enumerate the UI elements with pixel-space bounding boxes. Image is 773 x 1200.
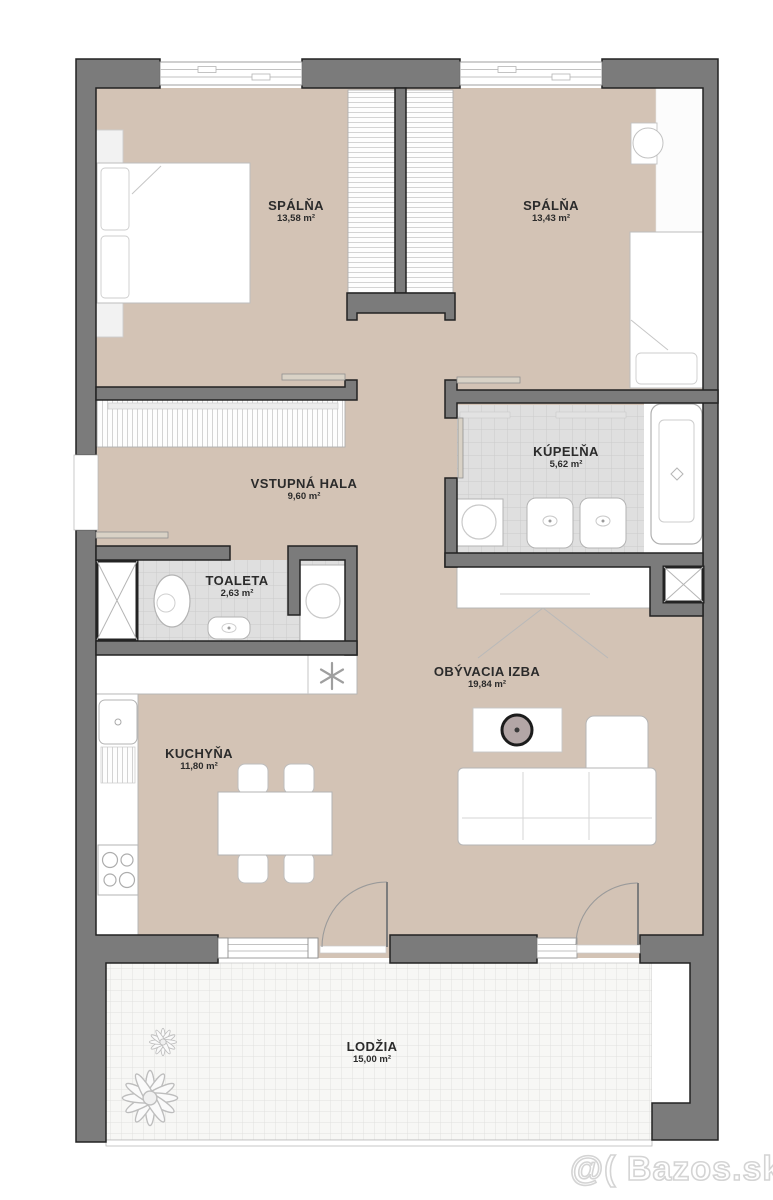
room-label-kupelna: KÚPEĽŇA 5,62 m² bbox=[533, 445, 599, 470]
floor-plan-drawing bbox=[0, 0, 773, 1200]
room-name: OBÝVACIA IZBA bbox=[434, 665, 540, 679]
room-label-toaleta: TOALETA 2,63 m² bbox=[206, 574, 269, 599]
room-label-vstupna-hala: VSTUPNÁ HALA 9,60 m² bbox=[251, 477, 358, 502]
entrance-door-leaf bbox=[96, 532, 168, 538]
window bbox=[218, 938, 318, 958]
room-area: 13,43 m² bbox=[523, 214, 579, 224]
entrance-opening bbox=[74, 455, 98, 530]
diagonal-cross-shaft-icon bbox=[664, 567, 703, 602]
window bbox=[160, 62, 302, 85]
room-name: TOALETA bbox=[206, 574, 269, 588]
room-label-spalna-2: SPÁLŇA 13,43 m² bbox=[523, 199, 579, 224]
room-name: KÚPEĽŇA bbox=[533, 445, 599, 459]
room-area: 13,58 m² bbox=[268, 214, 324, 224]
dish-rack bbox=[101, 747, 135, 783]
sink-icon bbox=[580, 498, 626, 548]
diagonal-cross-shaft-icon bbox=[97, 561, 137, 640]
room-area: 15,00 m² bbox=[347, 1055, 398, 1065]
room-name: VSTUPNÁ HALA bbox=[251, 477, 358, 491]
door-threshold bbox=[577, 945, 640, 953]
living-room-furniture bbox=[458, 708, 656, 845]
sofa bbox=[458, 768, 656, 845]
bathtub-icon bbox=[651, 404, 702, 544]
bedroom2-door-leaf bbox=[457, 377, 520, 383]
washing-machine-icon bbox=[300, 565, 346, 641]
room-name: KUCHYŇA bbox=[165, 747, 233, 761]
room-label-lodzia: LODŽIA 15,00 m² bbox=[347, 1040, 398, 1065]
nightstand bbox=[95, 303, 123, 337]
room-label-kuchyna: KUCHYŇA 11,80 m² bbox=[165, 747, 233, 772]
door-threshold bbox=[320, 946, 386, 953]
kitchen-sink bbox=[99, 700, 137, 744]
chair bbox=[633, 128, 663, 158]
bedroom1-wardrobe bbox=[348, 90, 395, 293]
room-area: 9,60 m² bbox=[251, 492, 358, 502]
watermark: @( Bazos.sk bbox=[570, 1150, 773, 1189]
window bbox=[537, 938, 577, 958]
floor-plan: SPÁLŇA 13,58 m² SPÁLŇA 13,43 m² VSTUPNÁ … bbox=[0, 0, 773, 1200]
room-name: SPÁLŇA bbox=[523, 199, 579, 213]
window bbox=[460, 62, 602, 85]
room-area: 11,80 m² bbox=[165, 762, 233, 772]
room-name: LODŽIA bbox=[347, 1040, 398, 1054]
bathroom-door-leaf bbox=[458, 418, 463, 478]
bedroom2-wardrobe bbox=[406, 90, 453, 293]
room-area: 5,62 m² bbox=[533, 460, 599, 470]
room-area: 19,84 m² bbox=[434, 680, 540, 690]
toilet-icon bbox=[154, 575, 190, 627]
bedroom1-door-leaf bbox=[282, 374, 345, 380]
nightstand bbox=[95, 130, 123, 163]
room-label-obyvacia-izba: OBÝVACIA IZBA 19,84 m² bbox=[434, 665, 540, 690]
room-label-spalna-1: SPÁLŇA 13,58 m² bbox=[268, 199, 324, 224]
room-name: SPÁLŇA bbox=[268, 199, 324, 213]
sink-icon bbox=[527, 498, 573, 548]
stove bbox=[98, 845, 138, 895]
room-area: 2,63 m² bbox=[206, 589, 269, 599]
